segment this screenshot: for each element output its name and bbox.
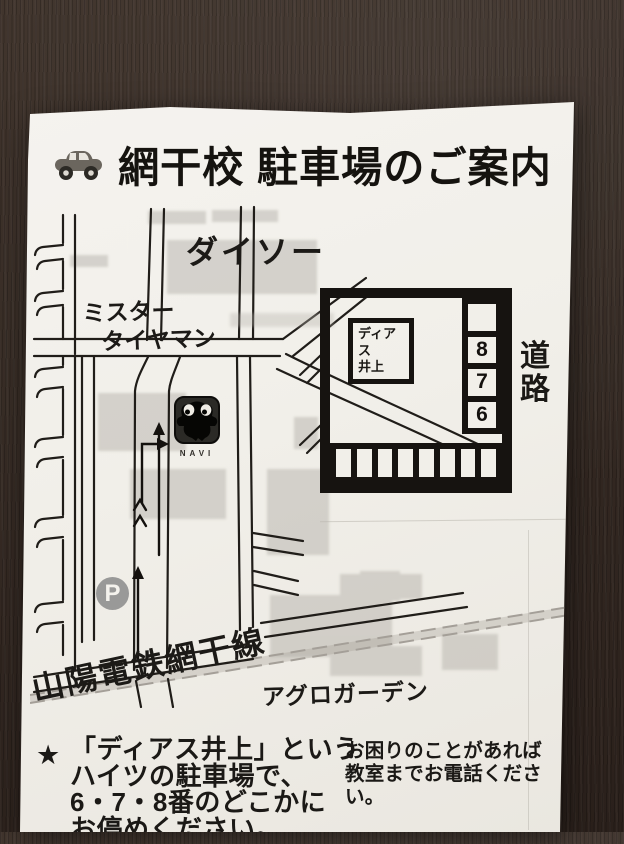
label-road-char2: 路 xyxy=(518,373,552,406)
parking-spot-column: 8 7 6 xyxy=(462,298,502,434)
building-dias-inoue: ディアス 井上 xyxy=(348,318,414,384)
instruction-line3: 6・7・8番のどこかに xyxy=(70,789,360,816)
label-agro-garden: アグロガーデン xyxy=(261,672,429,712)
page-title: 網干校 駐車場のご案内 xyxy=(118,134,552,195)
contact-note-line1: お困りのことがあれば xyxy=(345,740,578,763)
label-mister-tireman: ミスター タイヤマン xyxy=(82,295,216,357)
parking-spot-cell xyxy=(481,449,496,477)
paper-sheet: 網干校 駐車場のご案内 xyxy=(20,100,578,832)
instruction-line2: ハイツの駐車場で、 xyxy=(70,763,360,790)
navi-logo-caption: NAVI xyxy=(180,449,215,458)
label-mister-tireman-line2: タイヤマン xyxy=(101,323,216,356)
parking-spot-row xyxy=(330,443,502,483)
parking-spot-cell xyxy=(398,449,413,477)
label-daiso: ダイソー xyxy=(186,227,326,273)
contact-note-block: お困りのことがあれば 教室までお電話ください。 xyxy=(345,740,578,809)
title-row: 網干校 駐車場のご案内 xyxy=(50,134,570,195)
label-road-char1: 道 xyxy=(518,340,552,373)
parking-spot-cell xyxy=(461,449,476,477)
parking-spot-cell-8: 8 xyxy=(468,337,496,364)
photographed-flyer: 網干校 駐車場のご案内 xyxy=(20,100,578,832)
parking-spot-cell-6: 6 xyxy=(468,402,496,429)
label-mister-tireman-line1: ミスター xyxy=(82,295,215,328)
route-arrows xyxy=(132,422,169,659)
car-icon xyxy=(50,144,106,186)
navi-mascot-icon xyxy=(175,397,219,443)
star-bullet: ★ xyxy=(36,740,60,771)
building-name-line1: ディアス xyxy=(358,326,409,360)
parking-spot-cell xyxy=(419,449,434,477)
label-road-vertical: 道 路 xyxy=(518,340,552,406)
contact-note-line2: 教室までお電話ください。 xyxy=(345,763,578,809)
parking-lot-diagram: ディアス 井上 8 7 6 xyxy=(320,288,512,493)
instruction-left-block: 「ディアス井上」という ハイツの駐車場で、 6・7・8番のどこかに お停めくださ… xyxy=(70,736,360,842)
parking-spot-cell xyxy=(440,449,455,477)
parking-spot-cell xyxy=(357,449,372,477)
parking-spot-cell-empty xyxy=(468,304,496,331)
parking-p-icon: P xyxy=(96,577,129,610)
building-name-line2: 井上 xyxy=(358,359,409,376)
parking-lot-inner: ディアス 井上 8 7 6 xyxy=(330,298,502,483)
parking-spot-cell xyxy=(378,449,393,477)
parking-spot-cell-7: 7 xyxy=(468,369,496,396)
instruction-line4: お停めください。 xyxy=(70,816,360,843)
instruction-line1: 「ディアス井上」という xyxy=(70,736,360,763)
parking-spot-cell xyxy=(336,449,351,477)
illegible-small-print xyxy=(230,313,334,327)
